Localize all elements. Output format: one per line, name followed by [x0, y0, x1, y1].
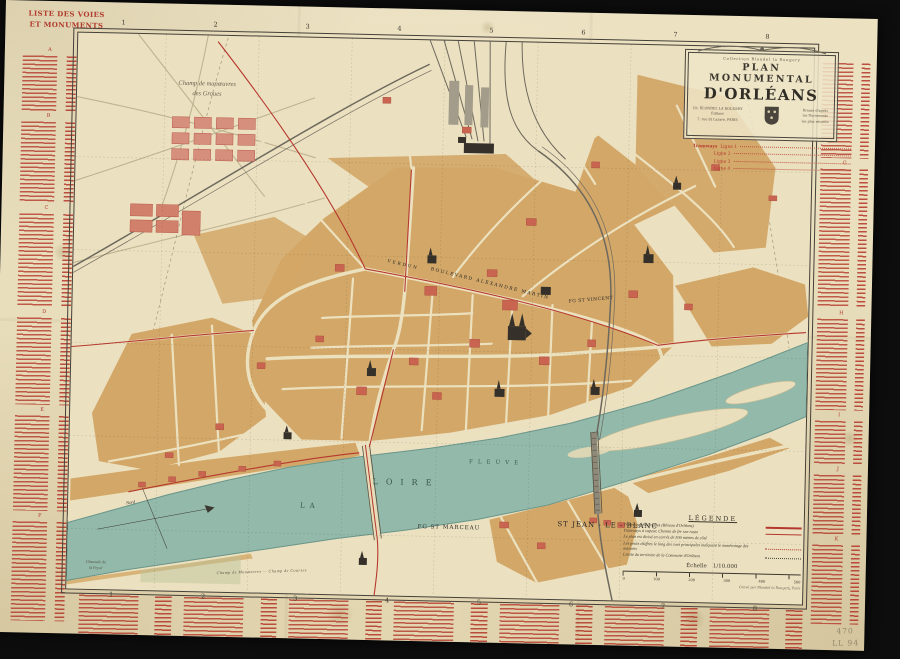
index-section-letter: B: [21, 113, 75, 119]
scale-value: 1/10.000: [713, 563, 738, 570]
grid-col-label: 1: [109, 590, 113, 598]
label-champ-de-manoeuvres: Champ de manœuvres des Groues: [137, 78, 277, 102]
index-entries: [13, 414, 69, 511]
index-section-letter: K: [812, 537, 860, 543]
index-entries: [394, 601, 488, 643]
pencil-number: 470: [836, 626, 853, 635]
grid-col-label: 7: [673, 31, 677, 39]
map-sheet: LISTE DES VOIES ET MONUMENTS A B C D E F…: [0, 0, 878, 651]
index-entries: [709, 607, 803, 649]
tramway-lines-note: Tramways Ligne 1 Ligne 2 Ligne 3 Ligne 4: [692, 143, 851, 176]
index-title: LISTE DES VOIES ET MONUMENTS: [25, 8, 107, 31]
index-title-line2: ET MONUMENTS: [25, 19, 107, 31]
grid-col-label: 8: [765, 33, 769, 41]
pencil-code: LL 94: [832, 638, 859, 647]
scale-tick: 0: [622, 577, 624, 581]
index-section-letter: C: [19, 205, 73, 211]
grid-col-label: 1: [121, 19, 125, 27]
tram-steam-line-symbol: [766, 534, 802, 536]
index-section-letter: D: [17, 309, 71, 315]
cartouche-inner: Collection Blondel la Rougery PLAN MONUM…: [686, 52, 836, 139]
tram-route-ellipsis: [734, 153, 851, 157]
tram-line-label: Ligne 4: [713, 166, 730, 174]
tram-electric-line-symbol: [766, 527, 802, 530]
grid-col-label: 7: [661, 602, 665, 610]
index-entries: [15, 316, 71, 405]
tram-route-ellipsis: [740, 146, 851, 149]
index-entries: [183, 596, 277, 638]
index-entries: [288, 598, 382, 640]
index-section-letter: E: [15, 407, 69, 413]
index-entries: [499, 603, 593, 645]
grid-col-label: 2: [213, 21, 217, 29]
index-entries: [17, 212, 73, 307]
notice-block: Dressé d'après les Documents les plus ré…: [801, 109, 828, 125]
index-entries: [813, 474, 862, 535]
index-entries: [22, 54, 77, 111]
label-la: LA: [300, 502, 320, 510]
index-section-letter: A: [23, 47, 77, 53]
index-entries: [604, 605, 698, 647]
publisher-address: 7, rue St Lazare, PARIS: [693, 117, 743, 123]
index-entries: [78, 594, 172, 636]
index-entries: [20, 120, 76, 203]
map-title-line2: D'ORLÉANS: [691, 84, 831, 105]
index-entries: [10, 520, 66, 621]
scale-caption: Échelle 1/10.000: [623, 562, 801, 572]
tramways-heading: Tramways: [693, 143, 718, 151]
grid-col-label: 2: [201, 592, 205, 600]
legend-item-label: Limite du territoire de la Commune d'Orl…: [623, 553, 761, 561]
cartouche-imprint-row: Ch. BLONDEL LA ROUGERY Éditeur 7, rue St…: [690, 104, 830, 127]
index-section-letter: H: [817, 311, 865, 317]
grid-col-label: 3: [305, 23, 309, 31]
grid-col-label: 5: [477, 598, 481, 606]
grid-col-label: 4: [397, 25, 401, 33]
label-chaussee-st-pryve: Chaussée de St Pryvé: [71, 559, 121, 573]
notice-line: les plus récents: [801, 119, 828, 125]
grid-col-label: 3: [293, 594, 297, 602]
title-cartouche: Collection Blondel la Rougery PLAN MONUM…: [683, 49, 839, 142]
grid-col-label: 5: [489, 27, 493, 35]
map-title-line1: PLAN MONUMENTAL: [691, 61, 831, 86]
orleans-coat-of-arms: [764, 106, 780, 126]
index-entries: [817, 168, 868, 309]
index-entries: [811, 544, 861, 625]
scale-tick: 100: [653, 577, 660, 581]
index-section-letter: J: [814, 467, 862, 473]
index-section-letter: F: [13, 513, 67, 519]
label-line: St Pryvé: [71, 565, 121, 572]
scale-label: Échelle: [686, 563, 707, 569]
commune-boundary-symbol: [765, 558, 801, 560]
index-entries: [814, 420, 863, 465]
index-section-letter: I: [815, 413, 863, 419]
legend: LÉGENDE Tramways électriques (Réseau d'O…: [622, 513, 802, 591]
label-loire: LOIRE: [372, 477, 439, 487]
publisher-block: Ch. BLONDEL LA ROUGERY Éditeur 7, rue St…: [693, 106, 743, 122]
grid-col-label: 8: [753, 604, 757, 612]
scale-tick: 200: [688, 578, 695, 582]
scale-tick: 400: [758, 579, 765, 583]
grid-col-label: 6: [569, 600, 573, 608]
tram-route-ellipsis: [733, 161, 850, 165]
tram-route-ellipsis: [733, 168, 850, 172]
scale-tick: 300: [723, 579, 730, 583]
photo-of-map: LISTE DES VOIES ET MONUMENTS A B C D E F…: [0, 0, 900, 659]
grid-col-label: 6: [581, 29, 585, 37]
house-numbering-symbol: [765, 549, 801, 551]
label-fleuve: FLEUVE: [469, 459, 523, 466]
grid-col-label: 4: [385, 596, 389, 604]
scale-tick: 500: [794, 580, 801, 584]
index-entries: [815, 318, 865, 411]
